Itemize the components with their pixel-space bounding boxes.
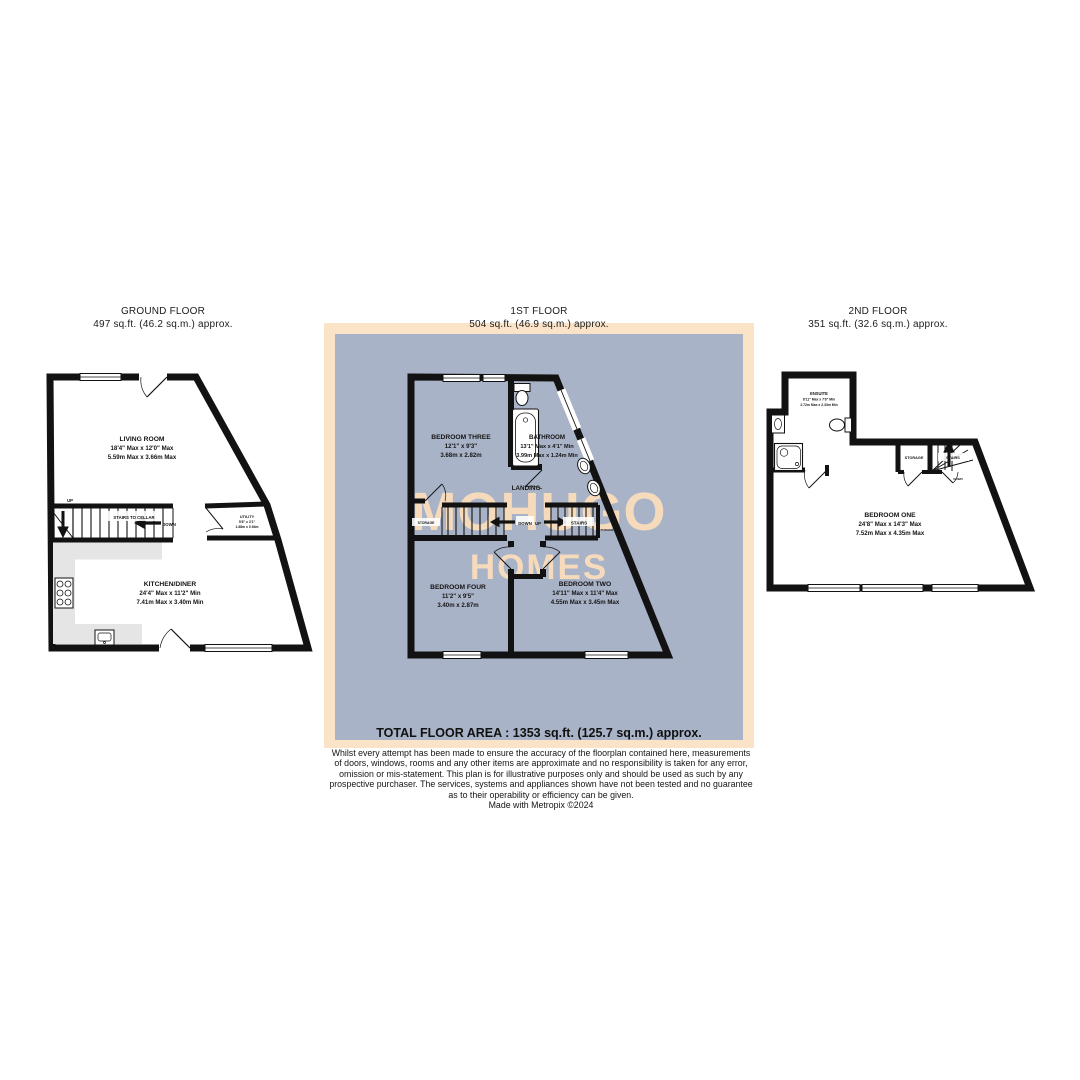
disclaimer-line: Whilst every attempt has been made to en… — [320, 748, 762, 758]
bedroom-one-imperial: 24'8" Max x 14'3" Max — [859, 521, 922, 528]
stairs-down-flight: STORAGE — [411, 505, 515, 538]
first-floor-name: 1ST FLOOR — [389, 305, 689, 318]
kitchen-imperial: 24'4" Max x 11'2" Min — [139, 590, 200, 597]
stairs-right-arrow-icon — [544, 518, 566, 527]
metropix-credit: Made with Metropix ©2024 — [320, 800, 762, 810]
window — [808, 585, 978, 592]
bedroom-four-imperial: 11'2" x 9'5" — [442, 593, 474, 600]
utility-imperial: 5'6" x 3'1" — [239, 520, 256, 524]
bedroom-four-name: BEDROOM FOUR — [430, 584, 486, 591]
shower-icon — [775, 444, 803, 471]
ground-outline-walls — [50, 377, 308, 648]
toilet-icon — [830, 418, 852, 432]
second-floor-area: 351 sq.ft. (32.6 sq.m.) approx. — [728, 318, 1028, 331]
first-floor-area: 504 sq.ft. (46.9 sq.m.) approx. — [389, 318, 689, 331]
ensuite-name: ENSUITE — [810, 391, 828, 396]
bedroom-four-metric: 3.40m x 2.87m — [437, 602, 479, 609]
down-label: DOWN — [518, 521, 532, 526]
disclaimer-line: prospective purchaser. The services, sys… — [320, 779, 762, 789]
bedroom-three-door-arc — [411, 484, 446, 501]
toilet-icon — [514, 384, 530, 406]
stairs-label: STAIRS — [571, 521, 588, 526]
bedroom-two-metric: 4.55m Max x 3.45m Max — [551, 599, 620, 606]
living-room-name: LIVING ROOM — [120, 436, 165, 443]
window — [443, 375, 505, 382]
bedroom-one-metric: 7.52m Max x 4.35m Max — [856, 530, 925, 537]
corridor-walls — [494, 541, 560, 655]
bathroom-imperial: 13'1" Max x 4'1" Min — [520, 444, 574, 450]
floorplan-sheet: MOHUGO HOMES GROUND FLOOR 497 sq.ft. (46… — [0, 0, 1080, 1080]
second-floor-title: 2ND FLOOR 351 sq.ft. (32.6 sq.m.) approx… — [728, 305, 1028, 331]
second-floor-plan: STORAGE STAIRS DOWN — [755, 368, 1055, 603]
kitchen-metric: 7.41m Max x 3.40m Min — [136, 599, 203, 606]
disclaimer-line: as to their operability or efficiency ca… — [320, 790, 762, 800]
up-label: UP — [67, 498, 73, 503]
sink-icon — [95, 630, 114, 645]
up-label: UP — [535, 521, 541, 526]
down-label: DOWN — [162, 522, 176, 527]
bedroom-three-metric: 3.68m x 2.82m — [440, 452, 482, 459]
total-floor-area: TOTAL FLOOR AREA : 1353 sq.ft. (125.7 sq… — [324, 726, 754, 740]
sink-icon — [772, 415, 785, 433]
kitchen-name: KITCHEN/DINER — [144, 581, 197, 588]
bedroom-three-name: BEDROOM THREE — [431, 434, 491, 441]
ground-floor-title: GROUND FLOOR 497 sq.ft. (46.2 sq.m.) app… — [13, 305, 313, 331]
storage-label: STORAGE — [418, 521, 435, 525]
disclaimer: Whilst every attempt has been made to en… — [320, 748, 762, 810]
utility-metric: 1.68m x 0.94m — [236, 525, 259, 529]
first-floor-title: 1ST FLOOR 504 sq.ft. (46.9 sq.m.) approx… — [389, 305, 689, 331]
ensuite-imperial: 8'11" Max x 7'8" Min — [803, 398, 835, 402]
storage-label: STORAGE — [905, 456, 924, 460]
stairs-to-cellar-label: STAIRS TO CELLAR — [113, 515, 155, 520]
ground-floor-plan: STAIRS TO CELLAR DOWN UP UTILITY 5'6" x … — [40, 368, 320, 664]
living-room-imperial: 18'4" Max x 12'0" Max — [111, 445, 174, 452]
bedroom-two-imperial: 14'11" Max x 11'4" Max — [552, 590, 618, 597]
storage-label: STORAGE — [598, 528, 613, 532]
disclaimer-line: of doors, windows, rooms and any other i… — [320, 758, 762, 768]
stairs-up-flight: STAIRS STORAGE — [544, 505, 614, 538]
bedroom-one-name: BEDROOM ONE — [864, 512, 916, 519]
first-outline-walls — [411, 377, 668, 655]
disclaimer-line: omission or mis-statement. This plan is … — [320, 769, 762, 779]
bathroom-name: BATHROOM — [529, 434, 565, 441]
bedroom-three-label: BEDROOM THREE 12'1" x 9'3" 3.68m x 2.82m — [431, 434, 491, 459]
window — [205, 645, 272, 652]
stairs-left-arrow-icon — [491, 518, 515, 527]
down-label: DOWN — [953, 477, 962, 481]
ensuite-metric: 2.72m Max x 2.33m Min — [800, 403, 837, 407]
bedroom-two-name: BEDROOM TWO — [559, 581, 611, 588]
first-floor-plan: STORAGE DOWN UP STAIRS — [395, 368, 685, 668]
utility-name: UTILITY — [240, 515, 255, 519]
landing-label: LANDING — [512, 485, 541, 492]
window — [561, 390, 590, 461]
second-floor-name: 2ND FLOOR — [728, 305, 1028, 318]
bathroom-metric: 3.99m Max x 1.24m Min — [516, 453, 578, 459]
bedroom-four-label: BEDROOM FOUR 11'2" x 9'5" 3.40m x 2.87m — [430, 584, 486, 609]
bedroom-three-imperial: 12'1" x 9'3" — [445, 443, 478, 450]
living-room-metric: 5.59m Max x 3.66m Max — [108, 454, 177, 461]
hob-icon — [55, 578, 73, 608]
kitchen-diner-label: KITCHEN/DINER 24'4" Max x 11'2" Min 7.41… — [136, 581, 203, 606]
ground-floor-area: 497 sq.ft. (46.2 sq.m.) approx. — [13, 318, 313, 331]
bedroom-one-label: BEDROOM ONE 24'8" Max x 14'3" Max 7.52m … — [856, 512, 925, 537]
window — [80, 374, 121, 381]
ground-floor-name: GROUND FLOOR — [13, 305, 313, 318]
bedroom-two-label: BEDROOM TWO 14'11" Max x 11'4" Max 4.55m… — [551, 581, 620, 606]
